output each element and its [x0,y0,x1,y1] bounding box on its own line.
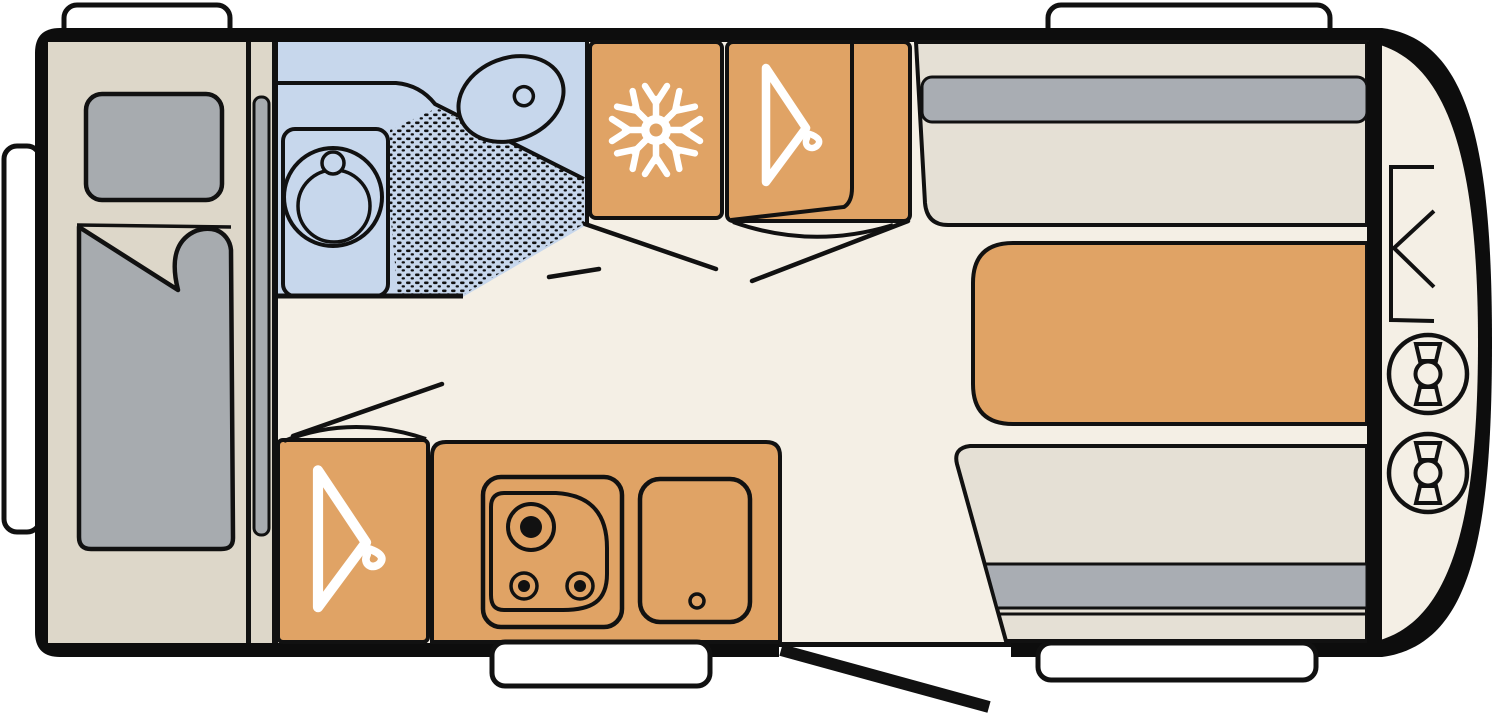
hob-burner-small-left-center [518,580,530,592]
window-bottom-right [1038,643,1316,680]
partition-wall-line-left [246,42,251,643]
dinette-table [973,243,1367,424]
window-left [4,146,40,532]
caravan-floor-plan [0,0,1500,713]
dinette-bench-top [916,42,1367,225]
bed-pillow [86,94,222,200]
wardrobe-bottom [278,440,428,642]
dinette-bench-bottom-backrest [985,564,1367,608]
dinette-bench-bottom [956,446,1367,641]
snowflake-center [650,124,663,137]
bed-duvet [79,227,233,549]
washbasin-faucet [322,152,344,174]
wardrobe-top [727,42,910,221]
sliding-door-panel [254,97,269,535]
hob-burner-small-right-center [574,580,586,592]
front-partition-wall [1367,42,1382,643]
floor-plan-svg [0,0,1500,713]
dinette-bench-top-backrest [922,77,1367,122]
hob-burner-large-center [520,516,542,538]
entry-step [492,642,710,686]
